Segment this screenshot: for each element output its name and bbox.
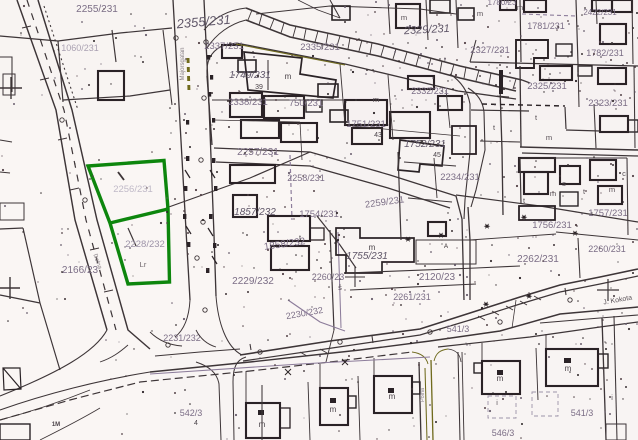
svg-text:750/231: 750/231 bbox=[289, 98, 323, 109]
svg-text:1752/231: 1752/231 bbox=[404, 139, 446, 150]
svg-text:m: m bbox=[401, 13, 407, 22]
svg-text:c: c bbox=[622, 169, 626, 178]
svg-text:2422/231: 2422/231 bbox=[583, 8, 617, 17]
svg-text:1757/231: 1757/231 bbox=[588, 208, 628, 219]
svg-text:m: m bbox=[497, 374, 504, 383]
svg-text:1751/231: 1751/231 bbox=[346, 119, 386, 130]
svg-text:45: 45 bbox=[433, 152, 441, 159]
svg-text:2256/231: 2256/231 bbox=[113, 184, 153, 195]
svg-text:2260/231: 2260/231 bbox=[588, 244, 626, 254]
svg-text:1749/231: 1749/231 bbox=[229, 70, 271, 81]
svg-text:2229/232: 2229/232 bbox=[232, 276, 274, 287]
svg-text:1780/23: 1780/23 bbox=[488, 0, 517, 7]
svg-text:2231/232: 2231/232 bbox=[163, 333, 201, 343]
svg-text:1060/231: 1060/231 bbox=[61, 43, 99, 53]
svg-text:2338/231: 2338/231 bbox=[228, 97, 268, 108]
svg-text:2120/23: 2120/23 bbox=[419, 272, 456, 283]
svg-text:541/3: 541/3 bbox=[447, 324, 470, 334]
svg-text:m: m bbox=[517, 3, 523, 12]
svg-text:m: m bbox=[285, 72, 292, 81]
svg-text:1754/231: 1754/231 bbox=[299, 209, 339, 220]
svg-text:s: s bbox=[338, 283, 342, 292]
svg-text:2257/231: 2257/231 bbox=[237, 147, 279, 158]
svg-text:1M: 1M bbox=[52, 422, 60, 428]
svg-text:2258/231: 2258/231 bbox=[287, 173, 325, 183]
svg-text:1755/231: 1755/231 bbox=[346, 251, 388, 262]
svg-text:2262/231: 2262/231 bbox=[517, 254, 559, 265]
svg-text:m: m bbox=[477, 9, 483, 18]
svg-text:1782/231: 1782/231 bbox=[586, 48, 624, 58]
svg-text:2337/231: 2337/231 bbox=[204, 41, 244, 52]
svg-text:m: m bbox=[389, 392, 396, 401]
svg-text:2228/232: 2228/232 bbox=[125, 239, 165, 250]
svg-text:1857/232: 1857/232 bbox=[234, 207, 276, 218]
svg-text:542/3: 542/3 bbox=[180, 408, 203, 418]
svg-text:m: m bbox=[373, 95, 379, 104]
svg-text:2234/231: 2234/231 bbox=[440, 172, 480, 183]
svg-text:546/3: 546/3 bbox=[492, 428, 515, 438]
svg-text:Lr: Lr bbox=[140, 260, 147, 269]
svg-text:1756/231: 1756/231 bbox=[532, 220, 572, 231]
svg-text:4: 4 bbox=[194, 420, 198, 427]
svg-text:39: 39 bbox=[255, 84, 263, 91]
svg-text:Majorsgatan: Majorsgatan bbox=[180, 47, 186, 80]
svg-text:2325/231: 2325/231 bbox=[527, 81, 567, 92]
svg-text:2332/231: 2332/231 bbox=[411, 86, 449, 96]
svg-text:m: m bbox=[546, 133, 552, 142]
svg-text:2323/231: 2323/231 bbox=[588, 98, 628, 109]
svg-text:2327/231: 2327/231 bbox=[470, 45, 510, 56]
svg-text:541/3: 541/3 bbox=[571, 408, 594, 418]
svg-text:s: s bbox=[562, 179, 566, 188]
svg-text:1781/231: 1781/231 bbox=[527, 21, 565, 31]
svg-text:m: m bbox=[330, 405, 337, 414]
svg-text:2260/23: 2260/23 bbox=[312, 272, 345, 282]
svg-text:A: A bbox=[444, 244, 448, 250]
svg-text:m: m bbox=[609, 185, 615, 194]
svg-text:43: 43 bbox=[374, 132, 382, 139]
svg-text:m: m bbox=[550, 189, 556, 198]
svg-text:2255/231: 2255/231 bbox=[76, 4, 118, 15]
